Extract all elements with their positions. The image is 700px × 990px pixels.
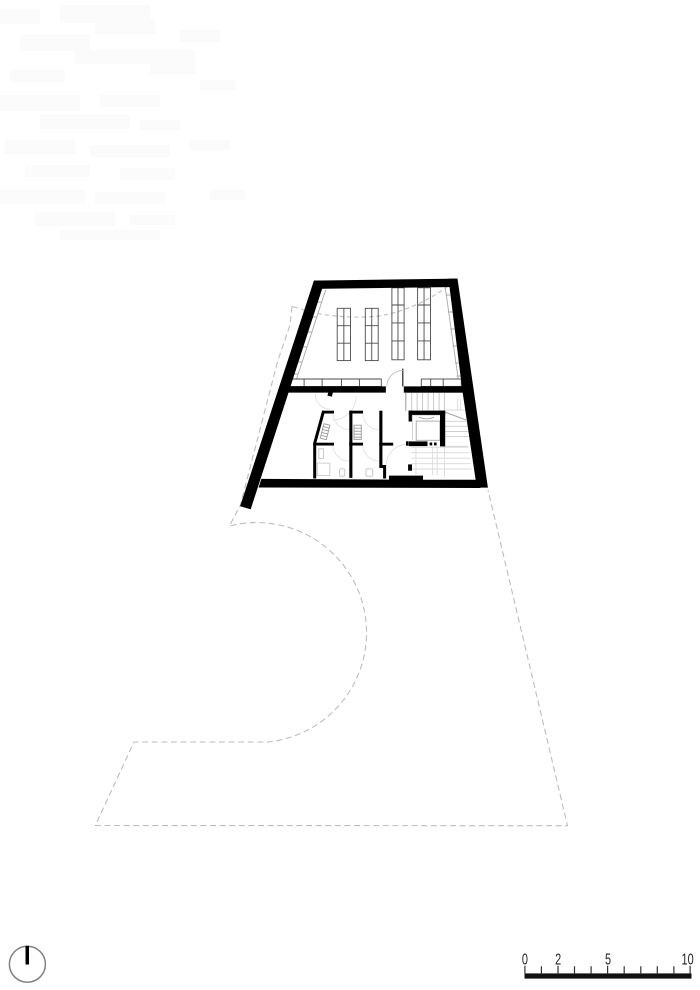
svg-text:5: 5 [605, 950, 611, 968]
svg-text:2: 2 [555, 950, 561, 968]
svg-text:10: 10 [682, 950, 694, 968]
svg-text:0: 0 [522, 950, 528, 968]
